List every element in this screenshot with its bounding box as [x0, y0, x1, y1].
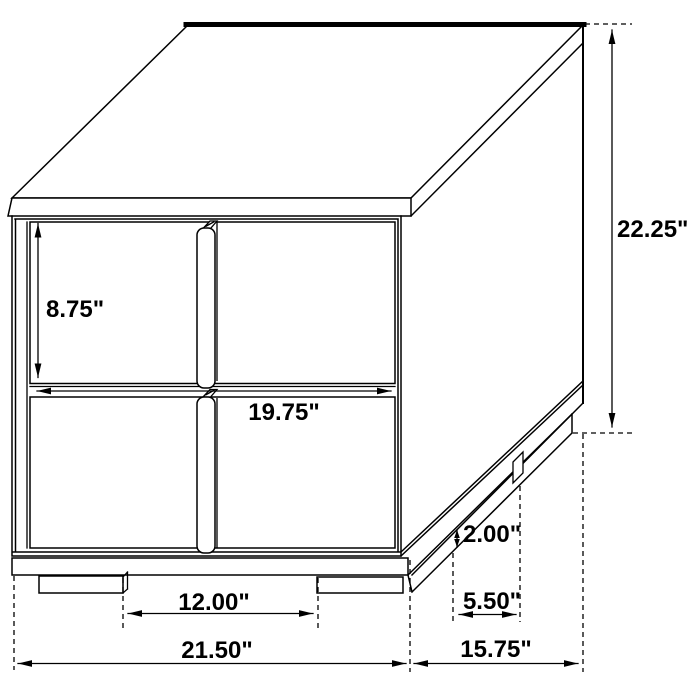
- cabinet-top-front-band: [8, 198, 411, 216]
- side-leg-spacing-label: 5.50": [463, 588, 521, 615]
- leg-front-right: [317, 577, 403, 593]
- front-leg-gap-label: 12.00": [178, 589, 249, 616]
- furniture-dimension-diagram: 22.25" 8.75" 19.75" 12.00" 21.50" 15.75"…: [0, 0, 700, 700]
- drawer-height-label: 8.75": [46, 296, 104, 323]
- overall-height-label: 22.25": [617, 216, 688, 243]
- overall-width-label: 21.50": [181, 637, 252, 664]
- leg-height-label: 2.00": [463, 521, 521, 548]
- pull-bottom-bar: [197, 397, 215, 553]
- drawer-pull-top: [197, 221, 217, 388]
- plinth-front: [12, 558, 408, 575]
- leg-front-left: [39, 576, 123, 593]
- dimension-leg-height: 2.00": [457, 521, 521, 548]
- drawing-canvas: 22.25" 8.75" 19.75" 12.00" 21.50" 15.75"…: [0, 0, 700, 700]
- drawer-pull-bottom: [197, 390, 217, 554]
- drawer-width-label: 19.75": [248, 399, 319, 426]
- pull-top-bar: [197, 228, 215, 388]
- overall-depth-label: 15.75": [460, 636, 531, 663]
